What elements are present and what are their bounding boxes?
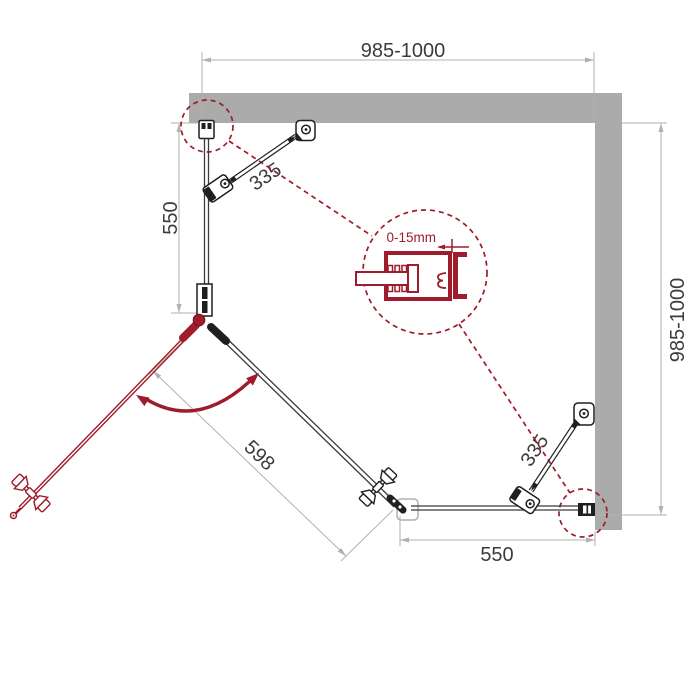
- top-brace-wall-bracket: [296, 121, 315, 141]
- dim-profile-adjustment-label: 0-15mm: [386, 230, 436, 245]
- dim-left-panel-label: 550: [160, 201, 182, 234]
- top-wall: [189, 93, 622, 123]
- callout-leader-bottom: [459, 324, 570, 493]
- dim-top-width-label: 985-1000: [361, 40, 446, 62]
- wall-profile-section: [356, 252, 467, 299]
- dim-right-depth-label: 985-1000: [667, 278, 689, 363]
- diagram-stage: 985-1000 985-1000 550 598 550 335 335: [0, 0, 700, 700]
- callout-leader-top: [229, 141, 372, 236]
- left-fixed-panel-glass: [205, 139, 209, 285]
- bottom-brace-wall-bracket: [574, 403, 594, 425]
- door-pivot: [193, 314, 205, 326]
- top-brace-clamp: [202, 174, 234, 203]
- glass-edge-section: [356, 272, 412, 285]
- door-top-hinge: [211, 327, 226, 341]
- dim-bottom-brace-label: 335: [517, 431, 554, 471]
- door-swing-arc: [136, 373, 259, 411]
- door-open-position: [10, 314, 259, 518]
- door-hinge-open: [183, 325, 196, 338]
- top-wall-clamp: [199, 121, 214, 139]
- bottom-fixed-panel-glass: [411, 506, 578, 510]
- right-wall: [595, 93, 622, 530]
- adjustment-indicator: [437, 239, 469, 253]
- dim-door-label: 598: [240, 436, 279, 475]
- callouts: [181, 100, 607, 537]
- bottom-corner-connector: [390, 498, 418, 520]
- shower-enclosure-diagram: 985-1000 985-1000 550 598 550 335 335: [0, 0, 700, 700]
- wall-end-profile: [578, 503, 595, 516]
- dim-bottom-panel-label: 550: [480, 544, 513, 566]
- detail-callout: 0-15mm: [356, 210, 487, 334]
- panel-end-profile: [197, 284, 212, 316]
- door-closed-position: [209, 324, 399, 508]
